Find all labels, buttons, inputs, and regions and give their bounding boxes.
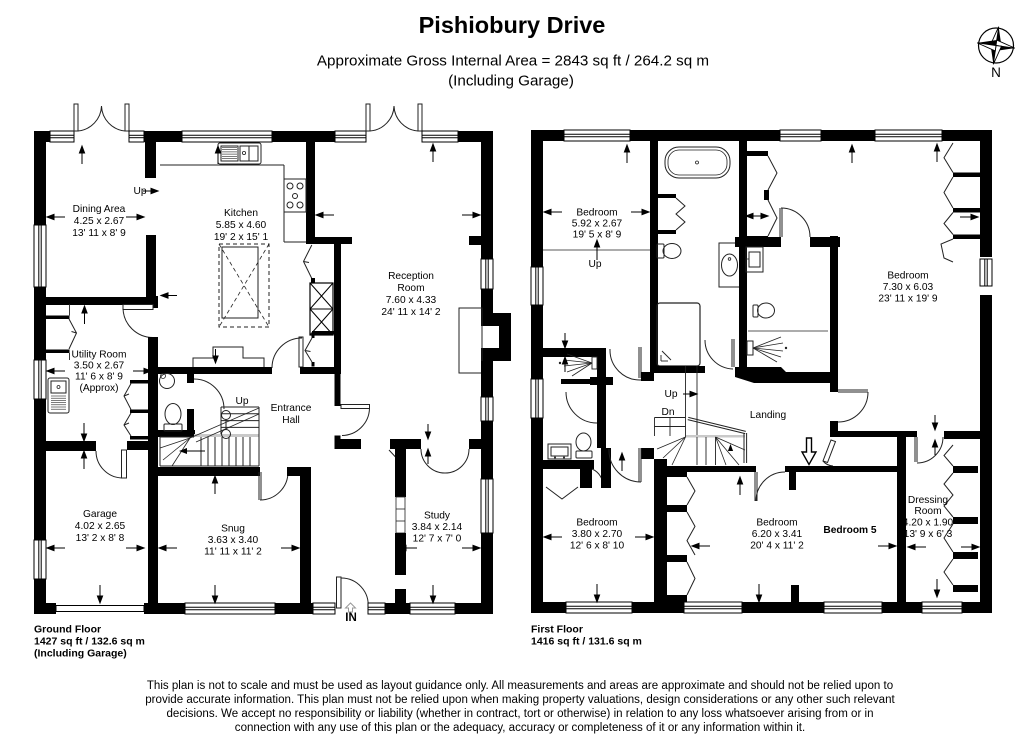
svg-text:(Including Garage): (Including Garage): [448, 73, 574, 90]
svg-text:First Floor: First Floor: [531, 624, 583, 636]
svg-text:Pishiobury Drive: Pishiobury Drive: [419, 12, 606, 38]
svg-text:12' 6 x 8' 10: 12' 6 x 8' 10: [570, 541, 625, 552]
svg-text:connection with any use of thi: connection with any use of this plan or …: [235, 722, 805, 734]
svg-text:Room: Room: [397, 283, 424, 294]
svg-text:Up: Up: [588, 259, 601, 270]
svg-text:Dining Area: Dining Area: [73, 204, 126, 215]
svg-text:Utility Room: Utility Room: [72, 350, 127, 361]
svg-text:13' 9 x 6' 3: 13' 9 x 6' 3: [904, 529, 953, 540]
svg-text:Bedroom: Bedroom: [576, 518, 617, 529]
svg-text:23' 11 x 19' 9: 23' 11 x 19' 9: [878, 294, 938, 305]
svg-text:12' 7 x 7' 0: 12' 7 x 7' 0: [413, 534, 462, 545]
svg-text:Landing: Landing: [750, 410, 787, 421]
svg-text:13' 2 x 8' 8: 13' 2 x 8' 8: [76, 533, 125, 544]
svg-text:decisions. We accept no respon: decisions. We accept no responsibility o…: [166, 708, 873, 720]
svg-text:6.20 x 3.41: 6.20 x 3.41: [752, 529, 803, 540]
svg-text:This plan is not to scale and: This plan is not to scale and must be us…: [147, 680, 893, 692]
svg-text:Approximate Gross Internal Are: Approximate Gross Internal Area = 2843 s…: [317, 53, 709, 70]
svg-text:Bedroom: Bedroom: [887, 271, 928, 282]
svg-text:Up: Up: [235, 396, 248, 407]
svg-text:(Including Garage): (Including Garage): [34, 648, 127, 660]
svg-text:Ground Floor: Ground Floor: [34, 624, 101, 636]
svg-text:5.92 x 2.67: 5.92 x 2.67: [572, 219, 623, 230]
svg-text:1416 sq ft / 131.6 sq m: 1416 sq ft / 131.6 sq m: [531, 636, 642, 648]
svg-text:Dressing: Dressing: [908, 495, 949, 506]
svg-text:3.80 x 2.70: 3.80 x 2.70: [572, 529, 623, 540]
svg-text:11' 11 x 11' 2: 11' 11 x 11' 2: [204, 547, 262, 558]
svg-text:Dn: Dn: [661, 407, 674, 418]
svg-text:3.50 x 2.67: 3.50 x 2.67: [74, 361, 125, 372]
svg-text:24' 11 x 14' 2: 24' 11 x 14' 2: [381, 307, 441, 318]
svg-text:Garage: Garage: [83, 509, 117, 520]
svg-text:19' 2 x 15' 1: 19' 2 x 15' 1: [214, 232, 269, 243]
svg-text:Bedroom: Bedroom: [756, 518, 797, 529]
svg-text:Reception: Reception: [388, 271, 434, 282]
svg-text:7.30 x 6.03: 7.30 x 6.03: [883, 282, 934, 293]
svg-text:7.60 x 4.33: 7.60 x 4.33: [386, 295, 437, 306]
svg-text:Entrance: Entrance: [271, 403, 312, 414]
svg-text:Study: Study: [424, 511, 451, 522]
svg-text:Bedroom 5: Bedroom 5: [823, 525, 877, 536]
svg-text:4.20 x 1.90: 4.20 x 1.90: [903, 518, 954, 529]
svg-text:Up: Up: [664, 389, 677, 400]
svg-text:11' 6 x 8' 9: 11' 6 x 8' 9: [75, 372, 123, 383]
svg-text:3.63 x 3.40: 3.63 x 3.40: [208, 535, 259, 546]
svg-text:Bedroom: Bedroom: [576, 208, 617, 219]
svg-text:Kitchen: Kitchen: [224, 208, 258, 219]
svg-text:Snug: Snug: [221, 524, 245, 535]
svg-text:Room: Room: [914, 506, 941, 517]
svg-text:provide accurate information.: provide accurate information. This plan …: [145, 694, 895, 706]
svg-text:IN: IN: [345, 612, 357, 624]
svg-text:4.02 x 2.65: 4.02 x 2.65: [75, 521, 126, 532]
svg-text:(Approx): (Approx): [79, 383, 118, 394]
svg-text:N: N: [991, 65, 1001, 80]
svg-text:20' 4 x 11' 2: 20' 4 x 11' 2: [750, 541, 804, 552]
svg-text:4.25 x 2.67: 4.25 x 2.67: [74, 216, 125, 227]
svg-text:19' 5 x 8' 9: 19' 5 x 8' 9: [573, 230, 622, 241]
svg-text:3.84 x 2.14: 3.84 x 2.14: [412, 522, 463, 533]
svg-text:13' 11 x 8' 9: 13' 11 x 8' 9: [72, 228, 126, 239]
svg-text:5.85 x 4.60: 5.85 x 4.60: [216, 220, 267, 231]
svg-text:1427 sq ft / 132.6 sq m: 1427 sq ft / 132.6 sq m: [34, 636, 145, 648]
svg-text:Hall: Hall: [282, 415, 300, 426]
